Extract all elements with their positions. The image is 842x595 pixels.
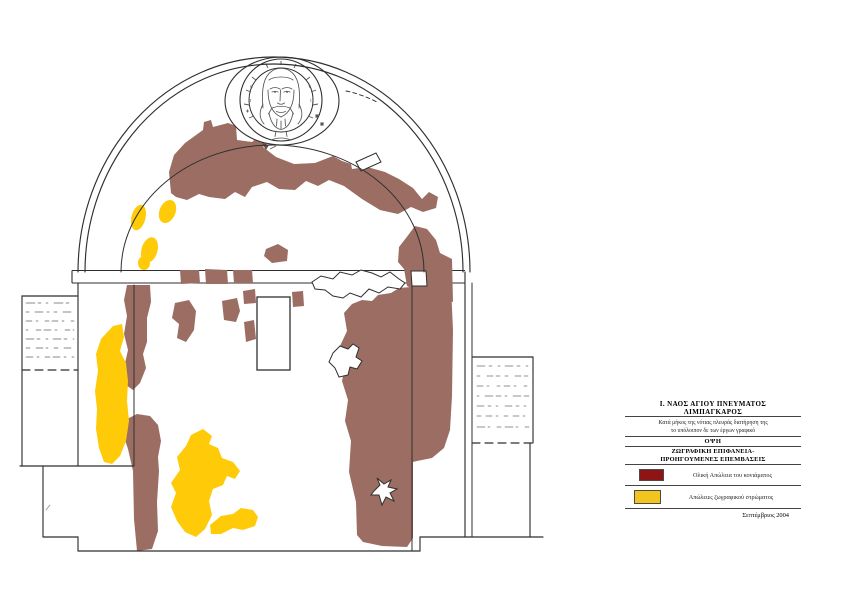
title-block: Ι. ΝΑΟΣ ΑΓΙΟΥ ΠΝΕΥΜΑΤΟΣ ΛΙΜΠΑΓΚΑΡΟΣ Κατά… xyxy=(625,399,801,521)
paint-loss-patch xyxy=(129,203,149,232)
plaster-loss-patch xyxy=(292,291,304,307)
legend-row-paint-loss: Απώλειες ζωγραφικού στρώματος xyxy=(625,486,801,509)
plaster-loss-patch xyxy=(222,298,240,322)
paint-loss-patch xyxy=(210,508,258,534)
paint-loss-areas xyxy=(95,197,258,537)
plaster-loss-patch xyxy=(243,289,256,304)
date-row: Σεπτέμβριος 2004 xyxy=(625,509,801,521)
vault-dashed-arc xyxy=(346,91,377,102)
cornice-block-outline xyxy=(411,271,427,286)
plaster-loss-patch xyxy=(172,300,196,342)
church-title-line1: Ι. ΝΑΟΣ ΑΓΙΟΥ ΠΝΕΥΜΑΤΟΣ xyxy=(660,400,767,408)
legend-row-plaster-loss: Ολική Απώλεια του κονιάματος xyxy=(625,465,801,486)
drawing-date: Σεπτέμβριος 2004 xyxy=(742,512,789,519)
door-opening xyxy=(257,297,290,370)
left-annex-hatching xyxy=(26,303,74,357)
plaster-loss-patch xyxy=(264,244,288,263)
page: ЄП ТО xyxy=(0,0,842,595)
plaster-loss-patch xyxy=(122,414,161,551)
right-annex-hatching xyxy=(477,366,529,427)
paint-loss-swatch xyxy=(634,490,661,504)
plaster-loss-patch xyxy=(233,270,253,283)
subject-row: ΖΩΓΡΑΦΙΚΗ ΕΠΙΦΑΝΕΙΑ- ΠΡΟΗΓΟΥΜΕΝΕΣ ΕΠΕΜΒΑ… xyxy=(625,447,801,465)
paint-loss-label: Απώλειες ζωγραφικού στρώματος xyxy=(661,494,801,501)
right-annex-right-wall xyxy=(530,357,533,537)
plaster-loss-patch xyxy=(180,270,200,284)
plaster-loss-patch xyxy=(244,320,256,342)
paint-loss-patch xyxy=(156,197,180,225)
svg-text:Т: Т xyxy=(308,84,311,89)
subject-line1: ΖΩΓΡΑΦΙΚΗ ΕΠΙΦΑΝΕΙΑ- xyxy=(671,448,754,456)
paint-loss-patch xyxy=(95,324,129,464)
subject-line2: ΠΡΟΗΓΟΥΜΕΝΕΣ ΕΠΕΜΒΑΣΕΙΣ xyxy=(660,456,765,464)
plaster-loss-swatch xyxy=(639,469,664,481)
medallion-base-tick xyxy=(270,146,276,149)
svg-text:Є: Є xyxy=(250,84,253,89)
scan-tick xyxy=(46,505,50,510)
plaster-loss-patch xyxy=(340,281,453,547)
description-row: Κατά μήκος της νότιας πλευράς διατήρηση … xyxy=(625,417,801,437)
plaster-loss-patch xyxy=(124,285,151,390)
paint-loss-patch xyxy=(138,256,150,270)
church-title-line2: ΛΙΜΠΑΓΚΑΡΟΣ xyxy=(684,408,743,416)
title-row: Ι. ΝΑΟΣ ΑΓΙΟΥ ΠΝΕΥΜΑΤΟΣ ΛΙΜΠΑΓΚΑΡΟΣ xyxy=(625,399,801,417)
view-label: ΟΨΗ xyxy=(705,437,722,446)
left-plinth-step xyxy=(43,537,78,551)
plaster-loss-areas xyxy=(122,120,453,551)
plaster-loss-patch xyxy=(205,269,228,284)
description-line2: το υπόλοιπον δε των έργων γραφικό xyxy=(671,427,755,435)
plaster-loss-label: Ολική Απώλεια του κονιάματος xyxy=(664,472,801,479)
view-label-row: ΟΨΗ xyxy=(625,437,801,447)
description-line1: Κατά μήκος της νότιας πλευράς διατήρηση … xyxy=(658,419,767,427)
